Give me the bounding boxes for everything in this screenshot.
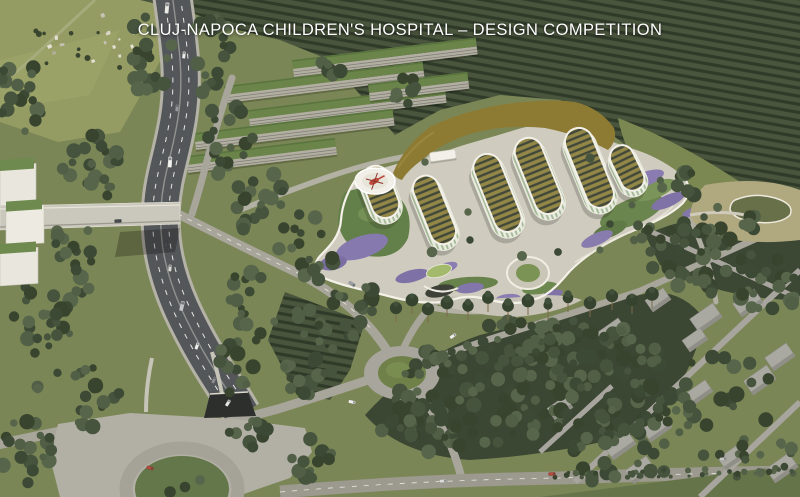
tree <box>254 327 266 339</box>
tree <box>729 403 737 411</box>
pine-tree <box>525 294 532 301</box>
tree <box>325 251 339 265</box>
rendering-stage: CLUJ-NAPOCA CHILDREN'S HOSPITAL – DESIGN… <box>0 0 800 497</box>
tree <box>785 442 798 455</box>
tree <box>312 456 324 468</box>
tree <box>505 414 518 427</box>
aerial-rendering <box>0 0 800 497</box>
tree <box>616 351 632 367</box>
tree <box>47 289 60 302</box>
tree <box>468 346 477 355</box>
car-windshield <box>444 480 446 482</box>
pine-tree <box>564 290 571 297</box>
tree <box>677 223 691 237</box>
tree <box>736 288 749 301</box>
car-windshield <box>553 473 555 475</box>
tree <box>51 239 60 248</box>
tree <box>553 387 567 401</box>
tree <box>713 391 728 406</box>
car <box>168 156 173 167</box>
tree <box>667 387 677 397</box>
tree <box>434 412 448 426</box>
tree <box>466 236 473 243</box>
tree <box>530 335 540 345</box>
tree <box>626 334 637 345</box>
tree <box>245 287 255 297</box>
tree <box>281 363 288 370</box>
bush <box>754 472 758 476</box>
tree <box>224 114 236 126</box>
tree <box>781 463 789 471</box>
bush <box>790 469 795 474</box>
tree <box>430 399 445 414</box>
car <box>719 457 726 461</box>
tree <box>743 357 756 370</box>
car-windshield <box>169 157 172 160</box>
tree <box>109 145 124 160</box>
tree <box>537 320 550 333</box>
tree <box>232 180 246 194</box>
tree <box>548 346 560 358</box>
tree <box>697 248 705 256</box>
tree <box>598 456 612 470</box>
tree <box>645 380 660 395</box>
tree <box>637 355 647 365</box>
tree <box>270 318 278 326</box>
tree <box>328 344 337 353</box>
tree <box>305 256 313 264</box>
tree <box>482 319 496 333</box>
tree <box>292 311 305 324</box>
tree <box>195 475 205 485</box>
tree <box>635 418 645 428</box>
tree <box>405 84 419 98</box>
tree <box>99 174 109 184</box>
tree <box>89 384 98 393</box>
tree <box>475 351 489 365</box>
bush <box>593 471 598 476</box>
tree <box>307 263 321 277</box>
tree <box>475 372 485 382</box>
tree <box>425 422 437 434</box>
tree <box>713 203 722 212</box>
tree <box>279 187 287 195</box>
tree <box>456 350 467 361</box>
tree <box>464 208 471 215</box>
tree <box>361 283 370 292</box>
tree <box>504 323 516 335</box>
tree <box>80 391 91 402</box>
car-windshield <box>724 458 726 460</box>
village-tree <box>117 65 122 70</box>
tree <box>308 351 323 366</box>
pine-tree <box>504 298 512 306</box>
tree <box>29 96 37 104</box>
tree <box>582 328 591 337</box>
tree <box>85 419 100 434</box>
tree <box>252 417 263 428</box>
tree <box>215 344 227 356</box>
tree <box>403 99 413 109</box>
tree <box>569 317 578 326</box>
tree <box>166 39 178 51</box>
bush <box>727 469 732 474</box>
village-tree <box>76 53 81 58</box>
tree <box>10 419 18 427</box>
pine-tree <box>409 293 414 298</box>
tree <box>300 330 308 338</box>
tree <box>531 396 540 405</box>
tree <box>646 261 659 274</box>
bush <box>661 467 666 472</box>
tree <box>209 142 223 156</box>
tree <box>413 387 422 396</box>
car-windshield <box>169 265 171 267</box>
tree <box>599 332 609 342</box>
tree <box>45 342 52 349</box>
tree <box>33 334 43 344</box>
tree <box>665 269 675 279</box>
tree <box>51 329 63 341</box>
tree <box>190 56 205 71</box>
tree <box>606 220 614 228</box>
tree <box>87 257 95 265</box>
tree <box>230 346 245 361</box>
tree <box>202 131 215 144</box>
tree <box>138 86 146 94</box>
tree <box>698 450 709 461</box>
tree <box>323 453 335 465</box>
tree <box>670 278 685 293</box>
car-windshield <box>176 105 178 107</box>
tree <box>285 383 296 394</box>
tree <box>23 316 36 329</box>
tree <box>756 451 764 459</box>
tree <box>335 292 344 301</box>
tree <box>671 179 684 192</box>
tree <box>392 401 407 416</box>
tree <box>710 249 721 260</box>
car-windshield <box>183 52 185 54</box>
tree <box>746 301 758 313</box>
tree <box>729 386 745 402</box>
tree <box>554 248 562 256</box>
tree <box>211 67 223 79</box>
tree <box>457 364 467 374</box>
pine-tree <box>587 296 593 302</box>
car <box>175 104 179 111</box>
pine-tree <box>425 302 431 308</box>
tree <box>437 367 449 379</box>
tree <box>205 104 219 118</box>
tree <box>758 412 773 427</box>
tree <box>747 250 756 259</box>
tree <box>303 303 316 316</box>
tree <box>333 64 347 78</box>
bush <box>687 474 690 477</box>
tree <box>96 140 108 152</box>
tree <box>44 333 51 340</box>
tree <box>347 330 359 342</box>
tree <box>421 445 436 460</box>
tree <box>617 326 627 336</box>
tree <box>509 430 516 437</box>
tree <box>3 436 15 448</box>
tree <box>84 245 97 258</box>
tree <box>110 158 117 165</box>
tree <box>557 372 568 383</box>
tree <box>552 324 561 333</box>
tree <box>367 306 377 316</box>
village-tree <box>45 61 49 65</box>
tree <box>569 444 579 454</box>
tree <box>324 60 333 69</box>
village-tree <box>97 31 100 34</box>
tree <box>317 230 326 239</box>
tree <box>585 153 594 162</box>
tree <box>498 393 510 405</box>
tree <box>38 310 48 320</box>
tree <box>705 350 720 365</box>
tree <box>71 371 81 381</box>
tree <box>238 310 245 317</box>
tree <box>487 344 496 353</box>
car-windshield <box>166 3 169 6</box>
tree <box>591 388 599 396</box>
tree <box>246 359 261 374</box>
tree <box>308 210 323 225</box>
tree <box>525 355 534 364</box>
tree <box>539 409 550 420</box>
village-building <box>52 52 56 55</box>
tree <box>718 351 731 364</box>
tree <box>237 223 250 236</box>
bush <box>629 471 636 478</box>
tree <box>294 209 304 219</box>
car <box>548 472 555 476</box>
tree <box>248 176 259 187</box>
tree <box>340 320 352 332</box>
tree <box>135 69 148 82</box>
tree <box>766 302 780 316</box>
tree <box>463 412 478 427</box>
tree <box>511 356 522 367</box>
tree <box>427 247 438 258</box>
tree <box>53 369 61 377</box>
tree <box>700 418 714 432</box>
village-tree <box>33 29 38 34</box>
tree <box>30 348 40 358</box>
tree <box>573 418 584 429</box>
tree <box>397 424 405 432</box>
car <box>168 264 172 271</box>
tree <box>545 380 555 390</box>
tree <box>15 451 28 464</box>
tree <box>742 218 756 232</box>
bush <box>716 471 721 476</box>
tree <box>257 201 265 209</box>
tree <box>657 177 664 184</box>
tree <box>763 373 774 384</box>
tree <box>679 238 689 248</box>
tree <box>569 359 577 367</box>
tree <box>315 321 324 330</box>
tree <box>14 439 25 450</box>
tree <box>577 383 585 391</box>
tree <box>404 414 417 427</box>
tree <box>368 297 378 307</box>
tree <box>225 428 234 437</box>
tree <box>687 169 695 177</box>
tree <box>679 377 693 391</box>
tree <box>84 226 93 235</box>
tree <box>475 382 485 392</box>
tree <box>297 229 305 237</box>
tree <box>598 436 613 451</box>
tree <box>688 359 696 367</box>
tree <box>706 234 721 249</box>
tree <box>45 433 55 443</box>
tree <box>633 220 643 230</box>
tree <box>286 374 294 382</box>
tree <box>27 465 39 477</box>
bush <box>734 471 740 477</box>
tree <box>636 344 646 354</box>
tree <box>239 151 247 159</box>
tree <box>629 202 636 209</box>
tree <box>247 442 258 453</box>
tree <box>691 228 700 237</box>
pine-tree <box>465 299 471 305</box>
tree <box>201 71 209 79</box>
tree <box>243 380 251 388</box>
tree <box>643 225 653 235</box>
tree <box>45 444 57 456</box>
tree <box>452 439 466 453</box>
tree <box>218 50 230 62</box>
tree <box>85 129 99 143</box>
tree <box>544 333 556 345</box>
tree <box>656 396 665 405</box>
bush <box>580 475 584 479</box>
tree <box>220 42 228 50</box>
tree <box>517 251 527 261</box>
tree <box>421 158 428 165</box>
tree <box>522 409 535 422</box>
tree <box>11 79 24 92</box>
tree <box>33 384 43 394</box>
tree <box>670 234 681 245</box>
tree <box>315 337 323 345</box>
bush <box>702 466 709 473</box>
tree <box>415 369 425 379</box>
tree <box>494 336 501 343</box>
bush <box>685 468 691 474</box>
tree <box>9 311 19 321</box>
tree <box>657 183 667 193</box>
tree <box>655 414 663 422</box>
bush <box>583 468 587 472</box>
tree <box>60 247 72 259</box>
tree <box>404 429 418 443</box>
car <box>164 240 168 247</box>
tree <box>649 343 662 356</box>
tree <box>80 405 94 419</box>
tree <box>736 440 748 452</box>
bush <box>741 469 747 475</box>
tree <box>479 437 490 448</box>
tree <box>24 81 35 92</box>
tree <box>448 348 456 356</box>
tree <box>598 350 607 359</box>
tree <box>478 336 489 347</box>
tree <box>741 456 749 464</box>
tree <box>391 88 403 100</box>
tree <box>247 133 258 144</box>
bush <box>613 472 617 476</box>
bush <box>669 475 673 479</box>
tree <box>353 315 368 330</box>
bush <box>757 470 764 477</box>
tree <box>22 477 33 488</box>
bush <box>651 475 654 478</box>
tree <box>771 254 783 266</box>
tree <box>467 428 478 439</box>
tree <box>75 419 82 426</box>
tree <box>19 414 34 429</box>
tree <box>706 287 717 298</box>
pine-tree <box>393 301 398 306</box>
tree <box>561 331 575 345</box>
tree <box>240 317 254 331</box>
tree <box>157 77 171 91</box>
pine-tree <box>485 291 492 298</box>
bush <box>766 469 773 476</box>
tree <box>517 382 530 395</box>
tree <box>747 378 757 388</box>
bush <box>600 471 607 478</box>
bush <box>573 470 580 477</box>
car <box>439 479 446 483</box>
tree <box>647 356 658 367</box>
tree <box>436 350 448 362</box>
tree <box>630 379 640 389</box>
tree <box>515 317 526 328</box>
tree <box>553 422 563 432</box>
tree <box>615 343 624 352</box>
tree <box>234 105 248 119</box>
pine-tree <box>609 289 615 295</box>
tree <box>656 234 666 244</box>
tree <box>745 265 758 278</box>
tree <box>244 423 252 431</box>
tree <box>449 420 462 433</box>
tree <box>659 438 670 449</box>
bush <box>564 472 570 478</box>
tree <box>702 224 712 234</box>
village-tree <box>77 47 81 51</box>
village-tree <box>85 55 91 61</box>
tree <box>527 428 540 441</box>
tree <box>84 176 99 191</box>
tree <box>114 388 125 399</box>
tree <box>102 191 112 201</box>
tree <box>494 362 503 371</box>
tree <box>227 144 235 152</box>
tree <box>666 225 676 235</box>
tree <box>513 368 528 383</box>
tree <box>466 397 481 412</box>
